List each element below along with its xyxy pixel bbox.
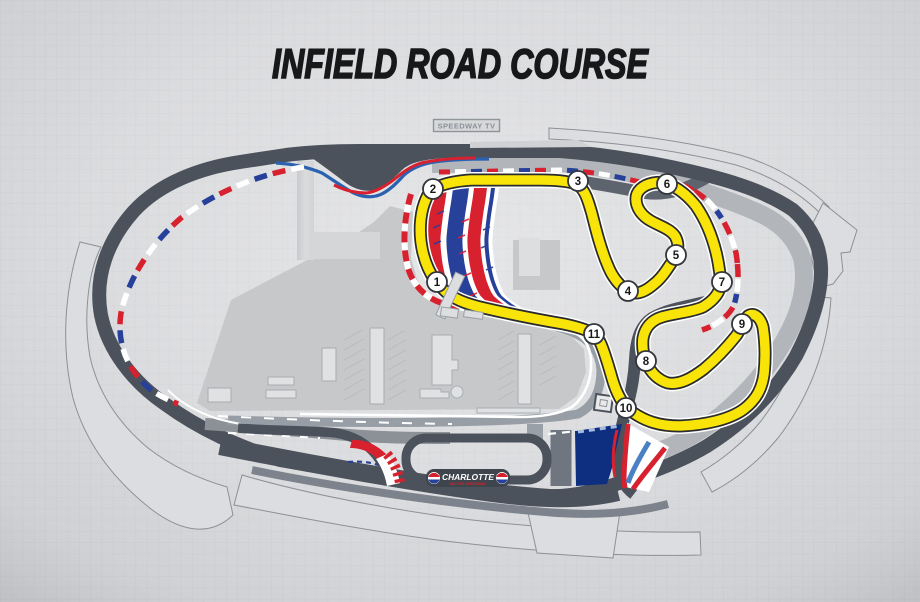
svg-text:7: 7 xyxy=(719,277,725,289)
svg-text:8: 8 xyxy=(643,356,650,368)
svg-text:SPEEDWAY TV: SPEEDWAY TV xyxy=(438,122,496,131)
svg-text:5: 5 xyxy=(673,250,680,262)
svg-text:11: 11 xyxy=(588,329,601,341)
svg-text:INFIELD ROAD COURSE: INFIELD ROAD COURSE xyxy=(272,40,650,87)
svg-text:MOTOR SPEEDWAY: MOTOR SPEEDWAY xyxy=(450,482,486,486)
svg-text:4: 4 xyxy=(625,286,632,298)
svg-text:10: 10 xyxy=(620,403,633,415)
svg-text:1: 1 xyxy=(434,277,441,289)
svg-text:2: 2 xyxy=(430,184,436,196)
svg-text:9: 9 xyxy=(739,319,745,331)
svg-text:CHARLOTTE: CHARLOTTE xyxy=(442,473,495,482)
svg-text:3: 3 xyxy=(575,176,581,188)
svg-text:6: 6 xyxy=(664,179,670,191)
